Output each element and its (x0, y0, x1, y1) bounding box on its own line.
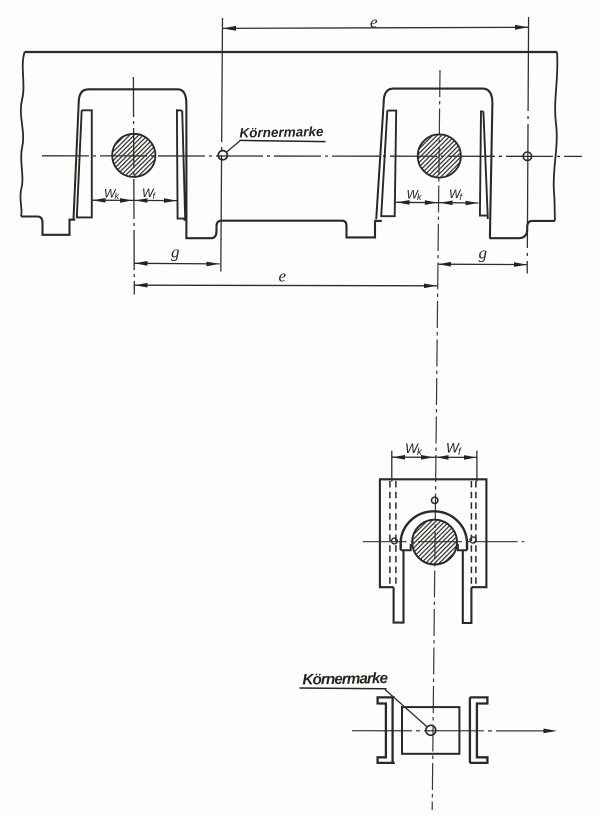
svg-text:Körnermarke: Körnermarke (239, 124, 324, 140)
svg-text:Körnermarke: Körnermarke (302, 670, 388, 689)
svg-text:e: e (279, 267, 287, 286)
svg-text:g: g (171, 243, 180, 262)
svg-text:k: k (115, 191, 120, 201)
svg-text:f: f (458, 447, 462, 458)
svg-text:f: f (153, 191, 157, 201)
svg-text:g: g (479, 244, 488, 263)
svg-text:e: e (370, 13, 378, 32)
svg-text:f: f (460, 192, 464, 202)
svg-text:k: k (417, 192, 422, 202)
